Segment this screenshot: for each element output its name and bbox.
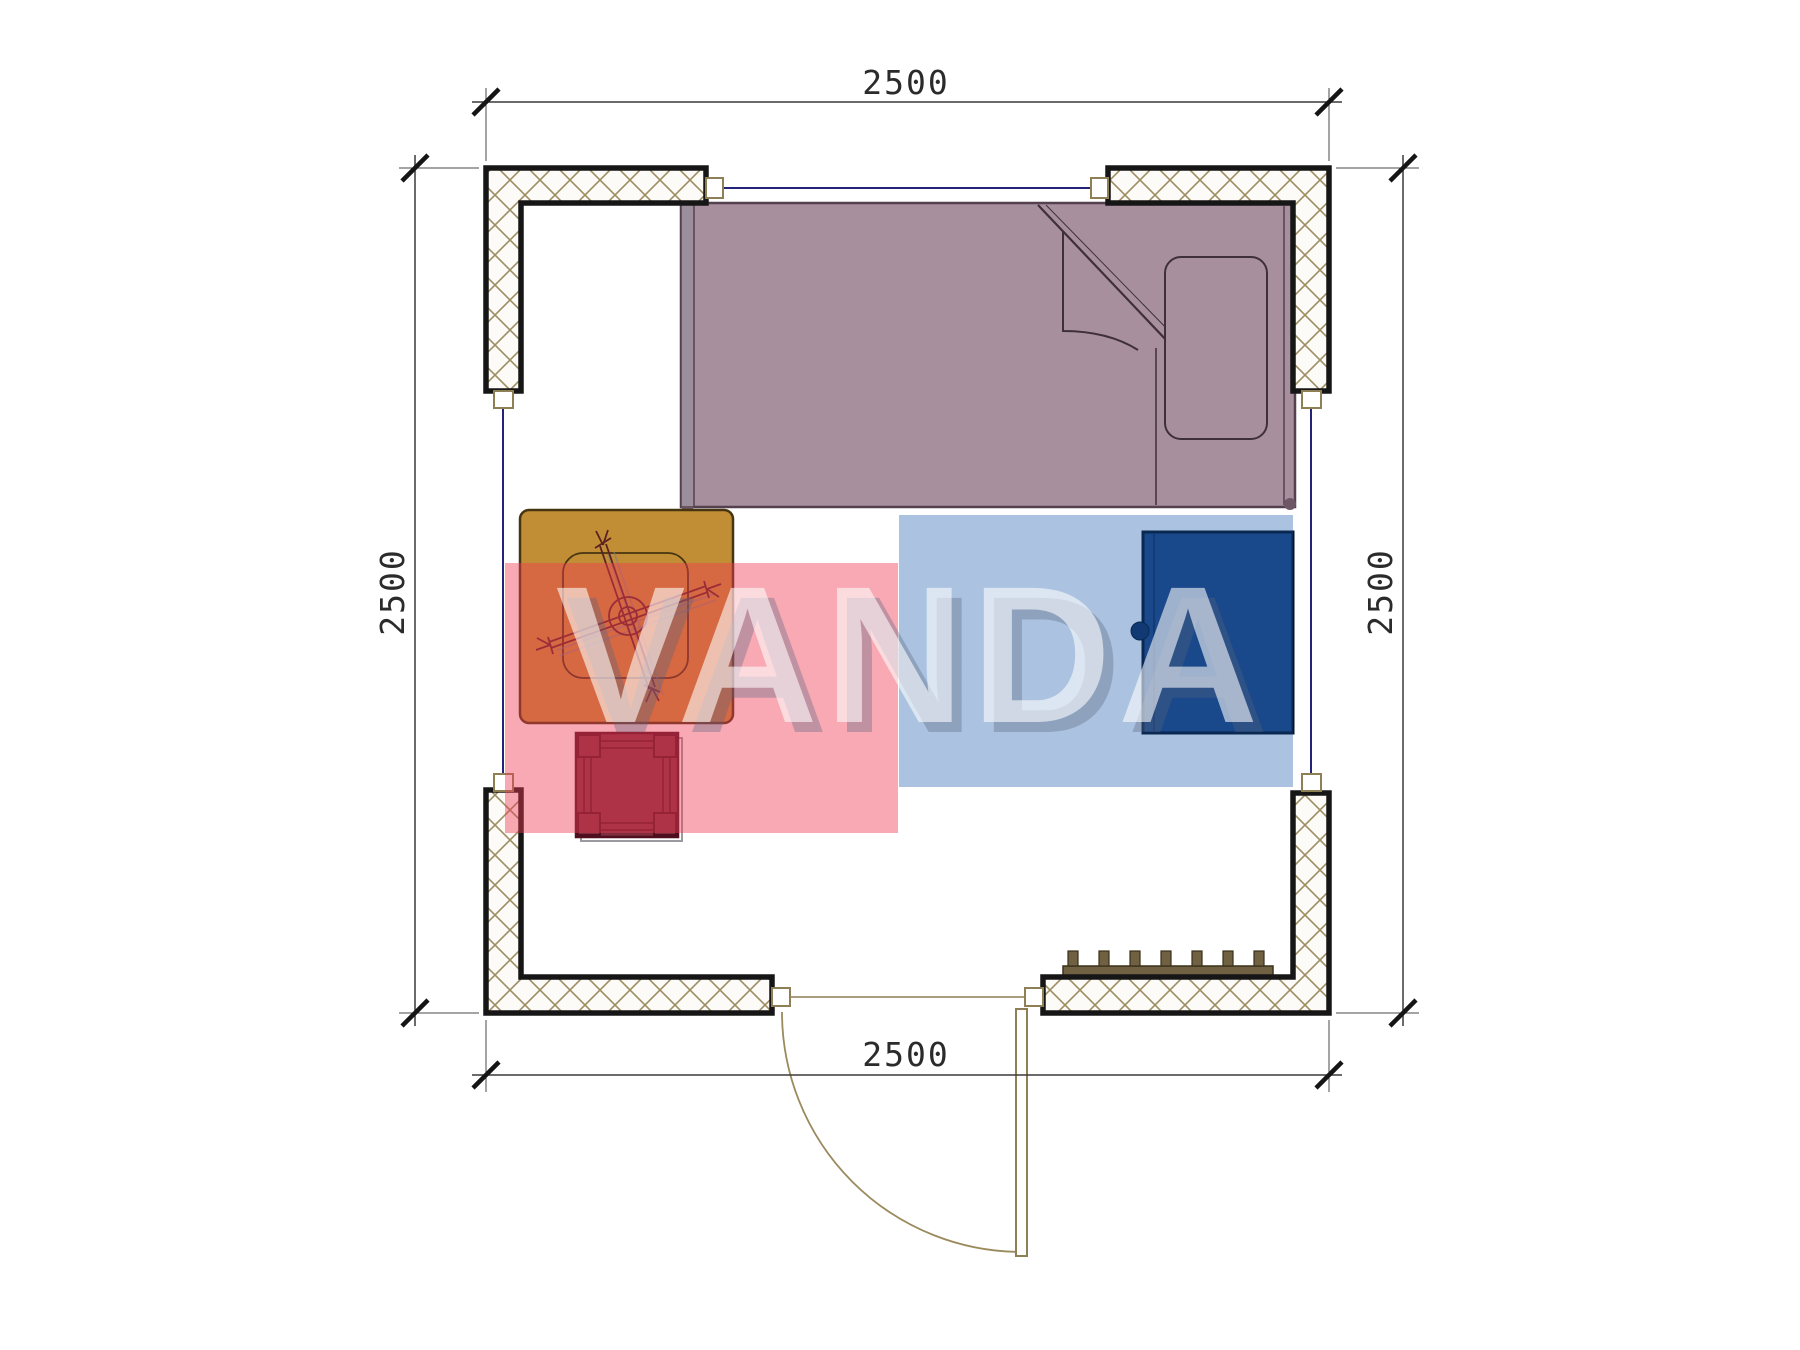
door-leaf (1016, 1009, 1027, 1256)
window-left-jamb-top (494, 391, 513, 408)
dim-value-left: 2500 (373, 548, 412, 635)
bed-frame-edge (681, 203, 694, 507)
window-top-jamb-left (706, 178, 723, 198)
wall-top-left (486, 168, 706, 391)
bed (681, 203, 1296, 520)
window-top-jamb-right (1091, 178, 1108, 198)
floor-plan-drawing: 2500 2500 2500 2500 VANDA VANDA (0, 0, 1800, 1350)
floor-plan: 2500 2500 2500 2500 VANDA VANDA (0, 0, 1800, 1350)
window-right-jamb-top (1302, 391, 1321, 408)
door-jamb-right (1025, 988, 1043, 1006)
pillow (1165, 257, 1267, 439)
dim-value-bottom: 2500 (862, 1035, 949, 1074)
door (772, 988, 1043, 1256)
watermark-text: VANDA (556, 546, 1265, 764)
radiator-fins (1068, 951, 1264, 966)
dim-value-top: 2500 (862, 63, 949, 102)
door-jamb-left (772, 988, 790, 1006)
dim-value-right: 2500 (1361, 548, 1400, 635)
wall-bottom-right (1043, 793, 1329, 1013)
bed-corner-nub (1284, 498, 1296, 510)
watermark: VANDA VANDA (505, 515, 1293, 833)
window-right-jamb-bottom (1302, 774, 1321, 791)
